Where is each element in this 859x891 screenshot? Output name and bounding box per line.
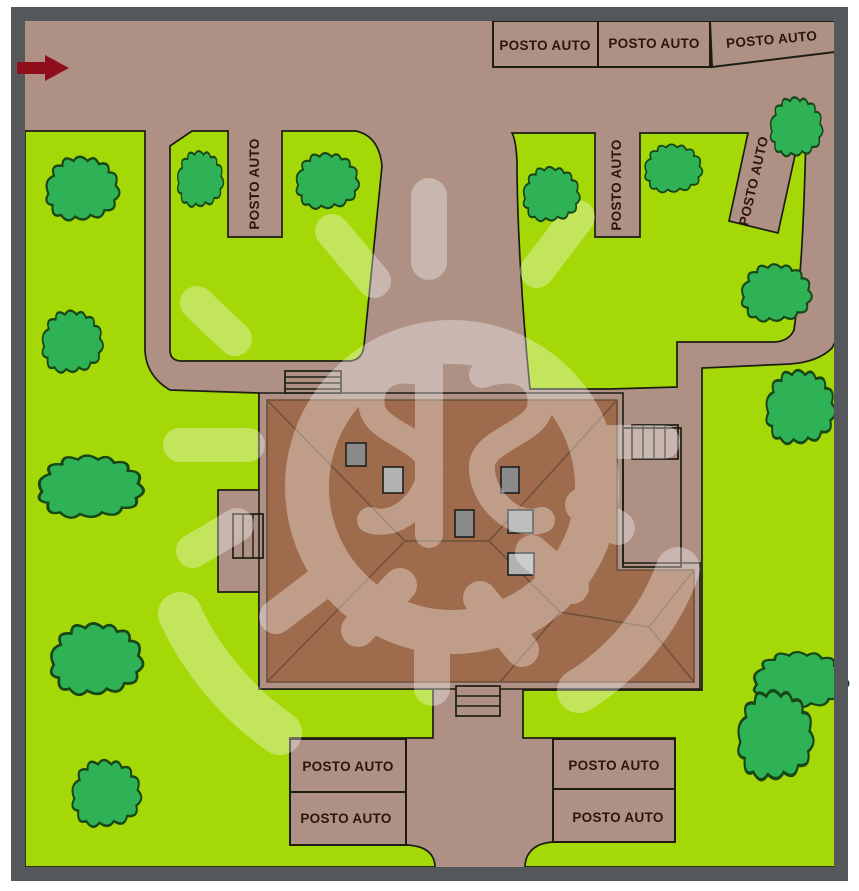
tree — [178, 151, 224, 207]
tree — [524, 167, 580, 221]
tree — [39, 456, 143, 518]
parking-label: POSTO AUTO — [302, 759, 393, 774]
tree — [645, 144, 702, 192]
chimney — [383, 467, 403, 493]
parking-label: POSTO AUTO — [300, 811, 391, 826]
tree — [46, 157, 119, 221]
tree — [51, 623, 143, 694]
parking-label-north-left: POSTO AUTO — [247, 138, 262, 229]
tree — [72, 760, 141, 827]
parking-label: POSTO AUTO — [499, 38, 590, 53]
parking-label: POSTO AUTO — [568, 758, 659, 773]
tree — [738, 691, 813, 780]
site-plan-drawing: POSTO AUTO POSTO AUTO POSTO AUTO POSTO A… — [0, 0, 859, 891]
tree — [42, 311, 103, 373]
tree — [296, 153, 359, 209]
chimney — [501, 467, 519, 493]
tree — [766, 370, 835, 444]
south-stairs — [456, 686, 500, 716]
tree — [771, 97, 823, 156]
chimney — [455, 510, 474, 537]
parking-label: POSTO AUTO — [572, 810, 663, 825]
parking-label-north-right: POSTO AUTO — [609, 139, 624, 230]
chimney — [346, 443, 366, 466]
tree — [742, 264, 812, 321]
site-plan-page: POSTO AUTO POSTO AUTO POSTO AUTO POSTO A… — [0, 0, 859, 891]
parking-label: POSTO AUTO — [608, 36, 699, 51]
